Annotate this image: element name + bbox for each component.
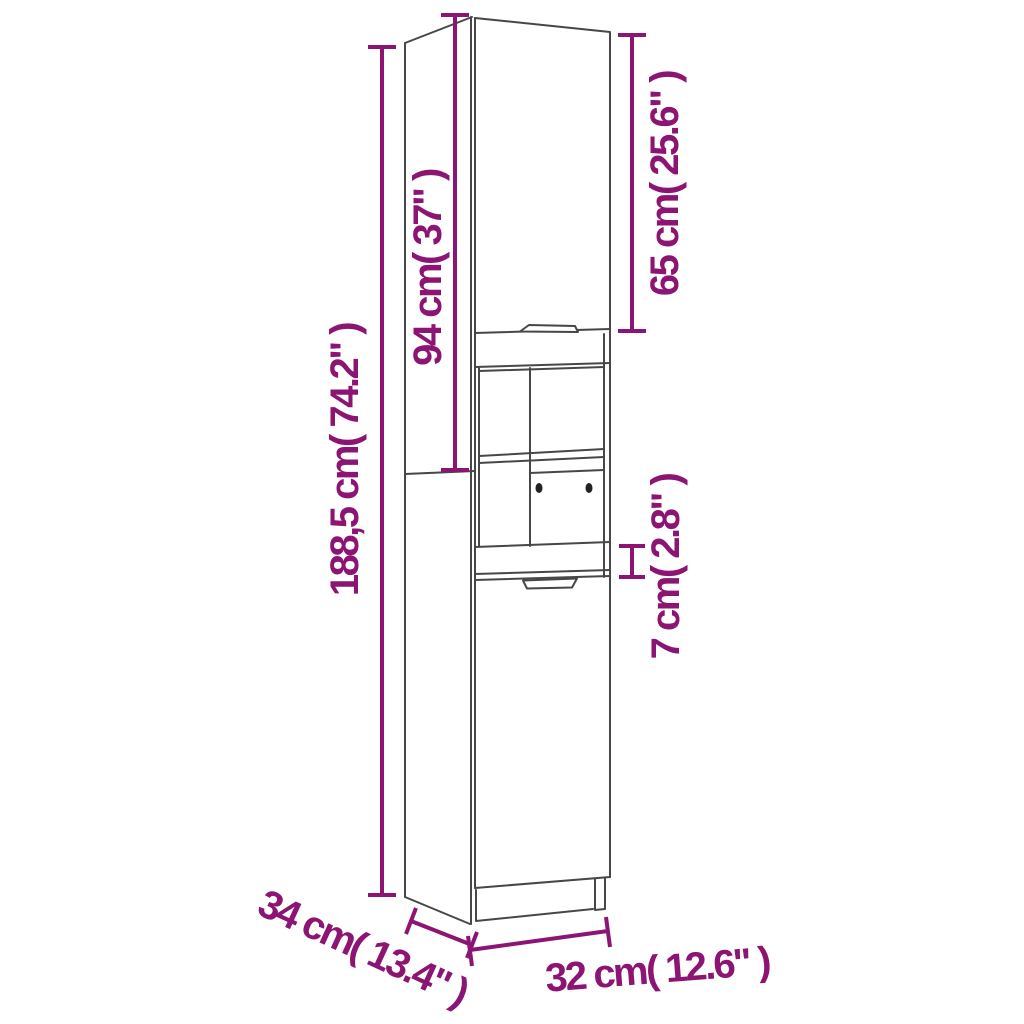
shelf-pin-hole-right: [586, 483, 593, 493]
dimension-line-total-height: [368, 47, 396, 895]
shelf-pin-hole-left: [536, 483, 543, 493]
lower-door: [475, 576, 610, 888]
band1-bottom-inner: [479, 367, 604, 371]
cabinet-dimension-svg: 188,5 cm( 74.2" ) 94 cm( 37" ) 65 cm( 25…: [0, 0, 1024, 1024]
plinth-front-edge: [476, 890, 593, 921]
open-shelf-section: [479, 368, 604, 546]
upper-door: [475, 325, 610, 333]
shelf-front-edge-top: [479, 449, 604, 456]
width-tick-right: [606, 917, 610, 947]
dimension-diagram: 188,5 cm( 74.2" ) 94 cm( 37" ) 65 cm( 25…: [0, 0, 1024, 1024]
upper-door-handle: [520, 325, 578, 332]
side-top-edge: [405, 17, 472, 43]
dimension-line-middle-panel: [619, 546, 645, 577]
depth-line: [411, 921, 472, 945]
lower-door-bottom-edge: [475, 877, 610, 888]
band2-bottom-edge: [475, 570, 610, 574]
band2-top-edge: [475, 542, 610, 547]
label-top-door-height: 65 cm( 25.6" ): [643, 71, 687, 296]
upper-fixed-band: [475, 363, 610, 371]
middle-fixed-band: [475, 542, 610, 574]
label-width: 32 cm( 12.6" ): [544, 939, 772, 1001]
shelf-front-edge-bottom: [479, 457, 604, 463]
cabinet-drawing: [405, 17, 610, 924]
front-top-and-right-edge: [475, 18, 610, 877]
label-upper-section-height: 94 cm( 37" ): [406, 169, 450, 366]
label-depth: 34 cm( 13.4" ): [251, 881, 474, 1014]
dimension-line-top-door: [618, 35, 646, 331]
band1-bottom-outer: [475, 363, 610, 367]
lower-door-handle: [523, 579, 577, 589]
right-compartment-joint-line: [530, 470, 604, 473]
plinth-base: [476, 878, 605, 921]
dimension-labels: 188,5 cm( 74.2" ) 94 cm( 37" ) 65 cm( 25…: [251, 71, 771, 1015]
plinth-right-leg: [595, 878, 605, 910]
label-middle-panel-height: 7 cm( 2.8" ): [644, 474, 688, 660]
width-line: [470, 931, 608, 950]
label-total-height: 188,5 cm( 74.2" ): [323, 323, 367, 596]
